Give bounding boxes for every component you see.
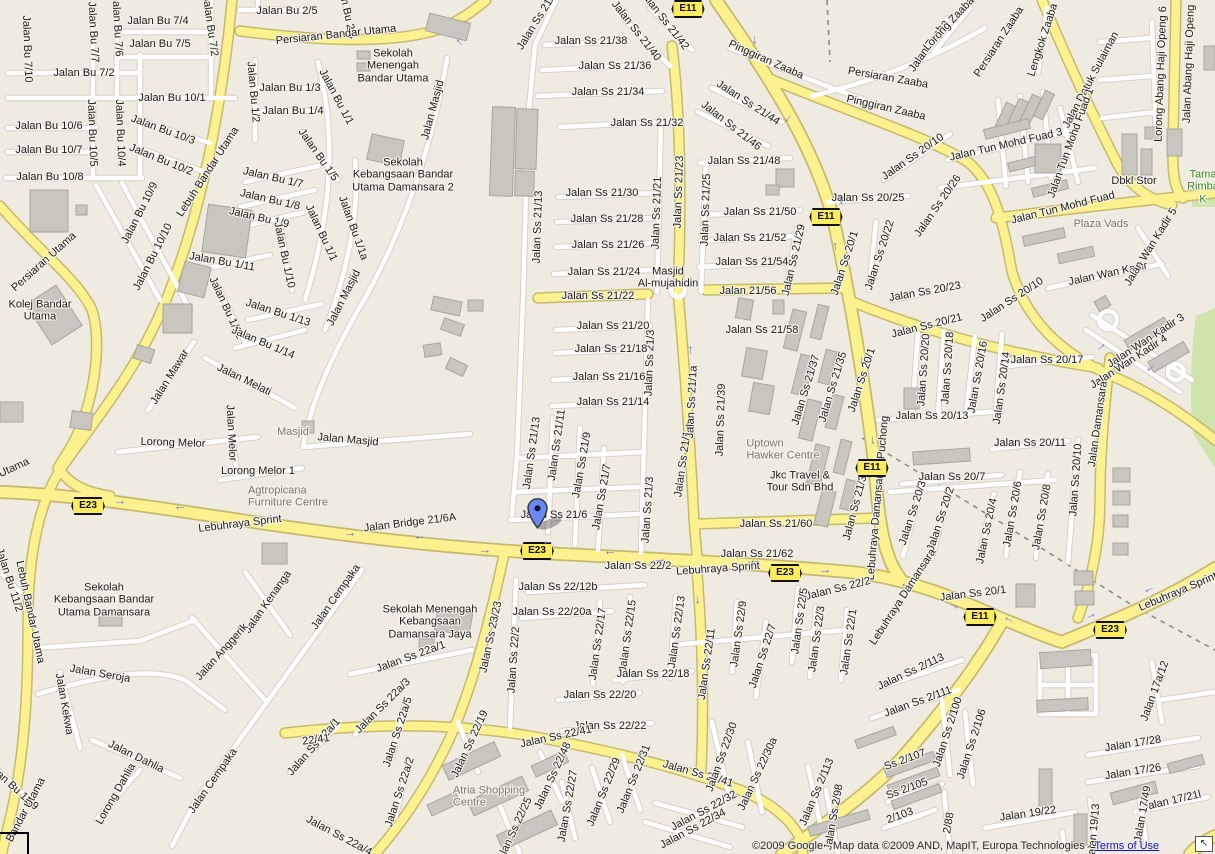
street-label: Jalan Ss 21/50 [724,206,797,218]
route-shield: E23 [71,497,105,515]
one-way-arrow-icon: → [174,504,187,517]
place-label: Sekolah Menengah Kebangsaan Damansara Ja… [383,604,478,641]
street-label: Jalan Bu 7/10 [20,15,35,83]
one-way-arrow-icon: → [868,433,882,447]
street-label: Lorong Melor 1 [221,465,295,477]
attribution: ©2009 Google - Map data ©2009 AND, MapIT… [752,840,1159,852]
street-label: Jalan Ss 22/18 [617,668,690,680]
street-label: Jalan Ss 22/20 [564,689,637,701]
one-way-arrow-icon: → [751,34,764,47]
location-marker-icon[interactable] [527,498,548,529]
one-way-arrow-icon: → [114,494,127,507]
street-label: Jalan Ss 21/39 [714,383,729,456]
street-label: Jalan Ss 20/7 [919,471,986,483]
street-label: Jalan Ss 21/24 [568,266,641,278]
street-label: Lorong Melor [140,436,205,451]
street-label: Jalan Ss 22/20a [513,606,592,618]
one-way-arrow-icon: → [694,594,707,607]
street-label: Jalan Ss 21/30 [566,187,639,199]
street-label: Jalan Bu 1/4 [262,105,323,117]
route-shield: E11 [809,208,842,226]
street-label: Jalan Ss 21/48 [708,155,781,167]
street-label: Jalan Ss 21/25 [699,173,714,246]
one-way-arrow-icon: → [826,240,840,254]
one-way-arrow-icon: → [604,549,617,562]
place-label: Jkc Travel & Tour Sdn Bhd [767,470,834,495]
street-label: Jalan Bu 7/4 [127,15,188,27]
one-way-arrow-icon: → [344,526,357,539]
one-way-arrow-icon: → [749,558,762,571]
street-label: Jalan Ss 20/13 [896,410,969,422]
street-label: Jalan Bu 7/5 [129,38,190,50]
map-viewport[interactable]: Jalan Bu 7/4Jalan Bu 7/5Jalan Bu 7/2Jala… [0,0,1215,854]
street-label: Dbkl Stor [1111,175,1156,187]
street-label: Jalan Bu 10/1 [138,92,205,104]
street-label: Jalan Bu 2/5 [256,5,317,17]
one-way-arrow-icon: → [479,543,492,556]
street-label: Jalan Ss 21/60 [740,518,813,530]
one-way-arrow-icon: → [654,552,667,565]
street-label: Jalan Ss 22/12b [519,581,598,593]
street-label: Jalan Ss 21/28 [571,213,644,225]
street-label: Jalan Ss 21/36 [579,60,652,72]
corner-arrow-control[interactable]: ↖ [1195,836,1213,852]
place-label: Sekolah Kebangsaan Bandar Utama Damansar… [352,157,454,194]
street-label: Jalan Ss 20/11 [994,437,1066,449]
one-way-arrow-icon: → [819,563,832,576]
route-shield: E11 [671,0,704,18]
place-label: Sekolah Menengah Bandar Utama [358,48,429,85]
street-label: Jalan Ss 21/18 [575,343,648,355]
terms-of-use-link[interactable]: Terms of Use [1094,840,1159,852]
street-label: Jalan Ss 21/13 [531,190,546,263]
street-label: Jalan Ss 20/17 [1011,354,1084,366]
one-way-arrow-icon: → [683,418,696,431]
route-shield: E11 [855,459,888,477]
one-way-arrow-icon: → [682,344,695,357]
street-label: Jalan Bu 1/3 [259,82,320,94]
street-label: Jalan Bu 10/8 [16,171,83,183]
one-way-arrow-icon: → [414,534,427,547]
boundary-dashed-line [827,0,830,62]
place-label: Sekolah Kebangsaan Bandar Utama Damansar… [54,582,154,619]
place-label: Agtropicana Furniture Centre [248,485,328,510]
street-label: Jalan Ss 21/58 [726,324,799,336]
street-label: Jalan 21/56 [720,285,777,297]
street-label: Jalan Ss 21/20 [577,320,650,332]
place-label: Tama Rimba K [1187,169,1215,206]
place-label: Masjid [277,426,309,438]
street-label: Jalan Ss 21/34 [572,86,645,98]
one-way-arrow-icon: → [870,498,884,512]
street-label: Jalan Ss 21/22 [562,290,635,302]
street-label: Jalan Ss 21/32 [611,117,684,129]
place-label: Kolej Bandar Utama [9,299,72,324]
street-label: Jalan Ss 21/23 [672,155,687,228]
street-label: Jalan Bu 10/5 [85,99,100,167]
street-label: Jalan Ss 21/16 [573,371,646,383]
route-shield: E11 [963,608,996,626]
copyright-text: ©2009 Google - Map data ©2009 AND, MapIT… [752,840,1094,852]
one-way-arrow-icon: → [542,539,555,552]
street-label: Jalan Ss 21/21 [650,176,665,249]
place-label: Plaza Vads [1074,218,1129,230]
place-label: Atria Shopping Centre [453,785,525,810]
street-label: Jalan Bu 10/7 [15,144,82,156]
street-label: Jalan Bu 10/4 [113,99,128,167]
one-way-arrow-icon: → [835,192,850,207]
street-label: Jalan Bu 7/2 [53,67,114,79]
place-label: Uptown Hawker Centre [746,438,819,463]
place-label: Masjid Al-mujahidin [638,266,699,291]
route-shield: E23 [768,564,802,582]
one-way-arrow-icon: → [697,684,710,697]
route-shield: E23 [1093,621,1127,639]
street-label: Jalan Ss 21/54 [716,256,789,268]
street-label: Jalan Bu 10/6 [15,120,82,132]
street-label: Jalan Ss 21/38 [555,35,628,47]
street-label: Jalan Ss 21/26 [572,239,645,251]
street-label: Jalan Ss 21/52 [714,232,787,244]
street-label: Jalan Ss 21/14 [577,396,650,408]
street-label: Jalan Ss 21/3 [643,329,658,396]
one-way-arrow-icon: → [857,353,871,367]
